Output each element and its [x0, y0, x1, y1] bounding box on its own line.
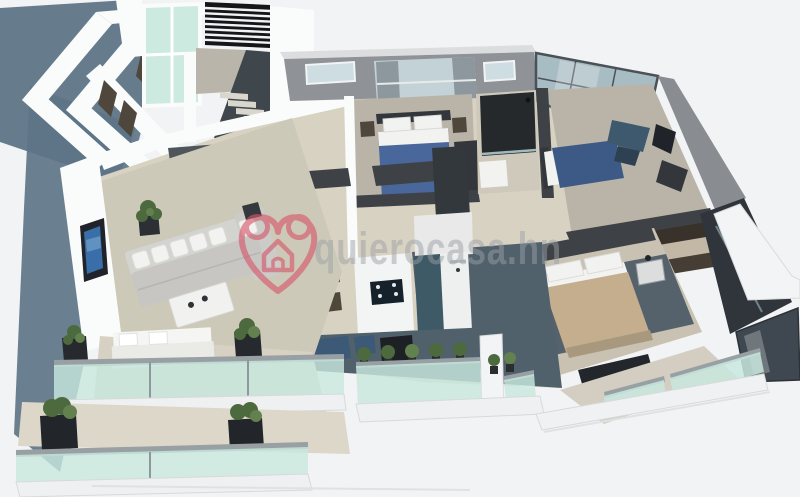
nightstand-right: [452, 117, 467, 133]
watermark-text: quierocasa.hn: [314, 223, 562, 274]
nightstand-right: [636, 259, 665, 285]
outdoor-pillow: [149, 332, 168, 345]
window-1: [306, 62, 355, 84]
planter-box: [40, 414, 78, 450]
living-room: [60, 118, 342, 362]
cooktop: [370, 279, 404, 305]
curtain-right: [452, 57, 477, 99]
floor-plan-canvas: quierocasa.hn: [0, 0, 800, 497]
nightstand-left: [360, 121, 375, 137]
shower-head: [526, 98, 531, 103]
tall-cabinet: [432, 146, 470, 218]
floor-plan-render: quierocasa.hn: [0, 0, 800, 497]
lower-terrace: [16, 397, 350, 497]
window-2: [484, 61, 515, 81]
lamp: [645, 255, 651, 261]
curtain-left: [376, 61, 400, 102]
bathroom-1: [476, 88, 554, 198]
outdoor-pillow: [119, 333, 138, 346]
bath-vanity: [479, 160, 508, 188]
